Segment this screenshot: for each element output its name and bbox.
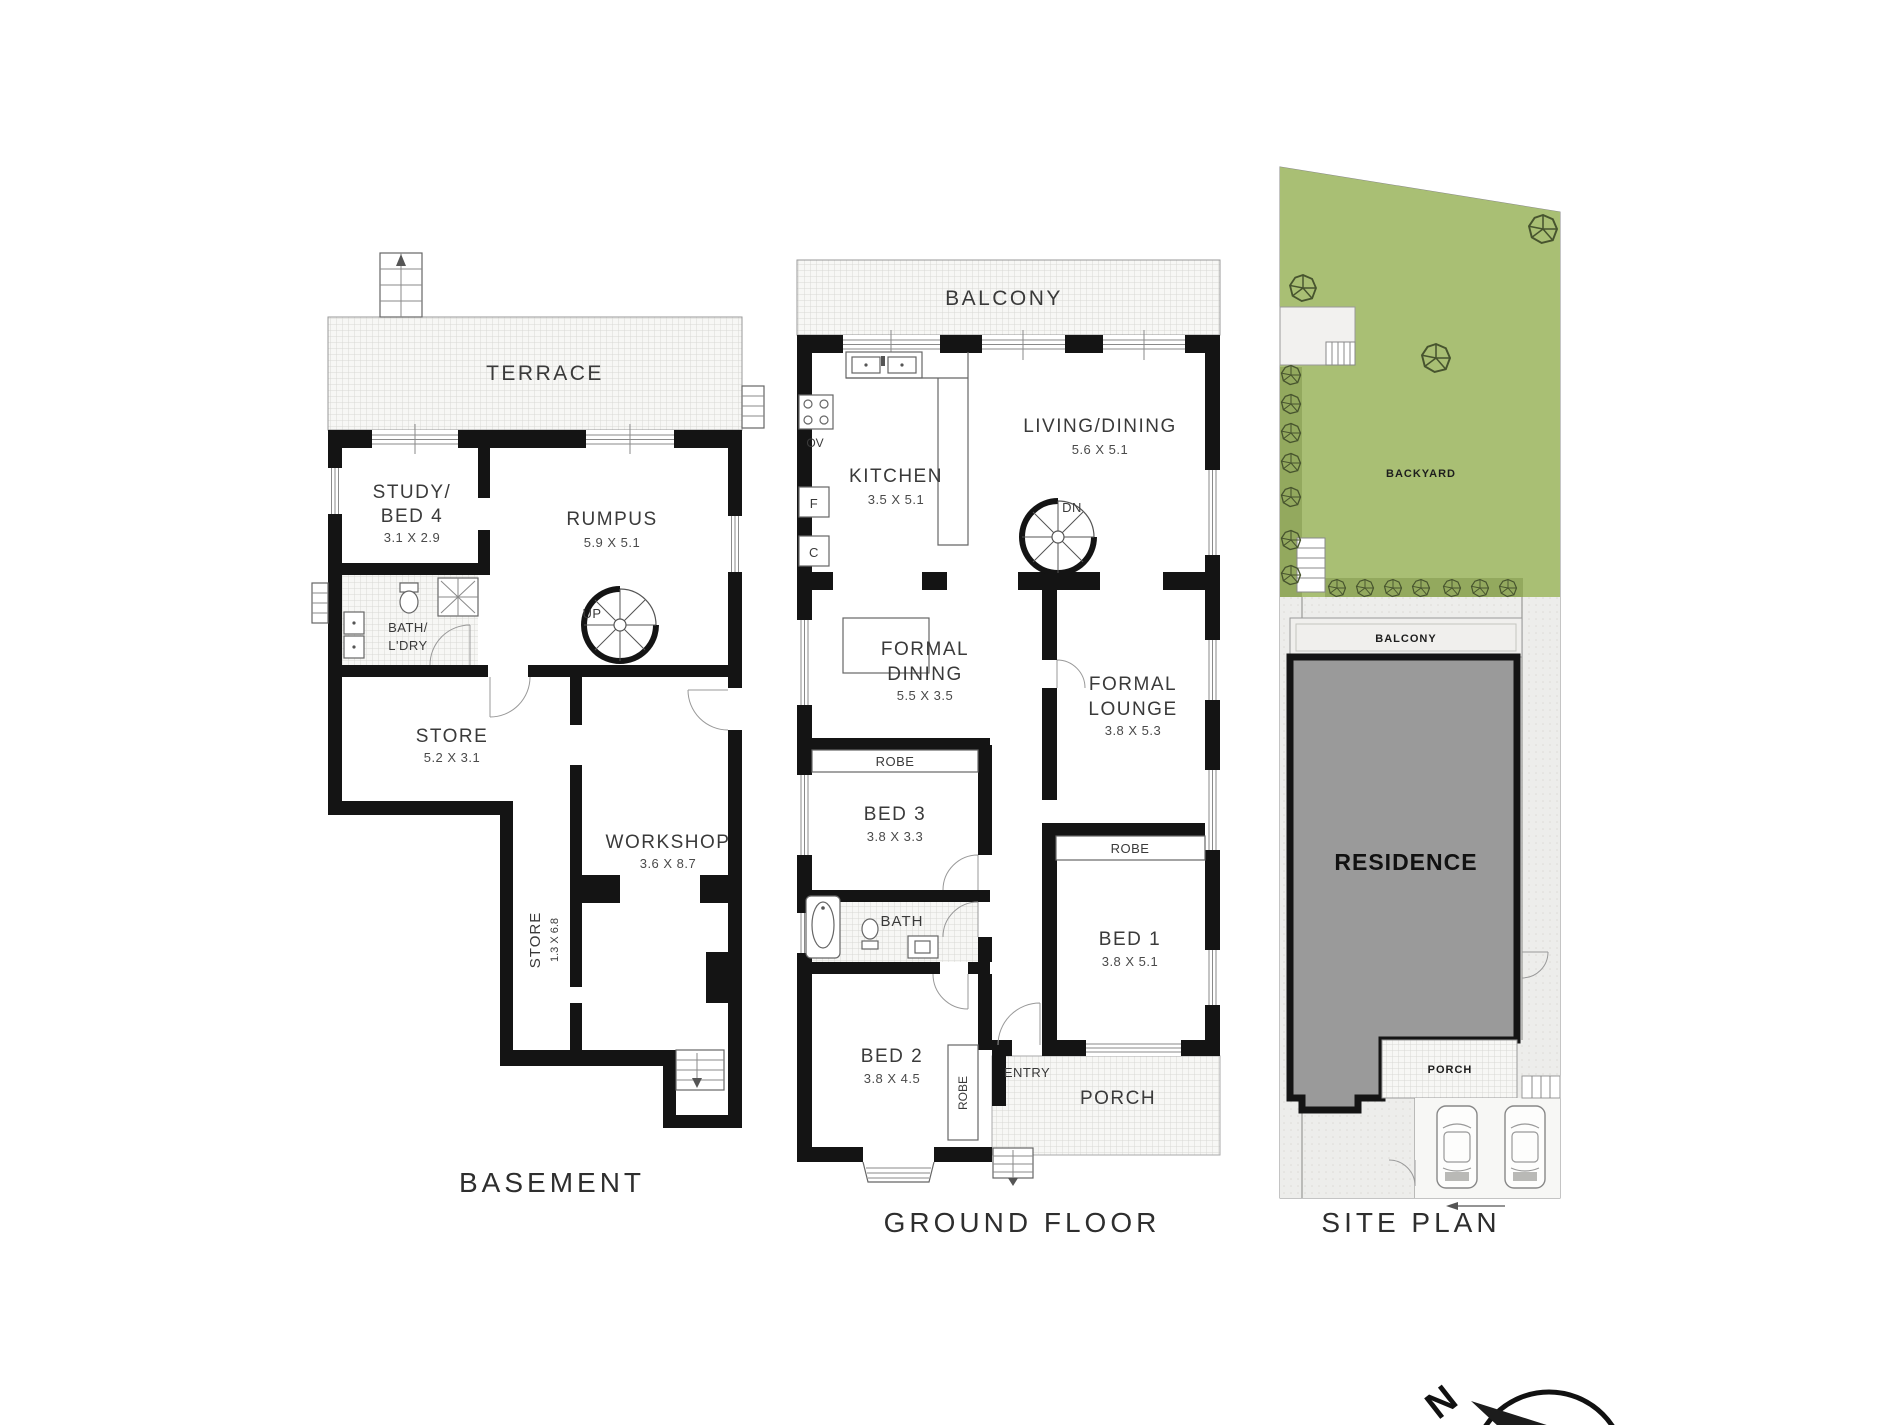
formal-lounge-label-line1: FORMAL (1089, 674, 1177, 695)
bed2-dims: 3.8 X 4.5 (864, 1071, 921, 1086)
ground-floor-title: GROUND FLOOR (884, 1207, 1161, 1238)
workshop-label: WORKSHOP (606, 832, 731, 853)
study-bed4-label-line2: BED 4 (381, 506, 443, 527)
basement-plan: TERRACE STUDY/ BED 4 3.1 X 2.9 RUMPUS 5.… (312, 253, 764, 1198)
site-terrace (1280, 307, 1355, 365)
bath-laundry-label-line2: L'DRY (388, 638, 427, 653)
compass: N (1418, 1378, 1625, 1425)
spiral-stair-down-icon (1022, 501, 1094, 573)
kitchen-sink-icon (846, 352, 922, 378)
rumpus-dims: 5.9 X 5.1 (584, 535, 641, 550)
living-dining-label: LIVING/DINING (1023, 416, 1177, 437)
formal-lounge-label-line2: LOUNGE (1088, 699, 1177, 720)
fridge-label: F (810, 496, 818, 511)
vanity-icon (908, 936, 938, 958)
kitchen-label: KITCHEN (849, 466, 943, 487)
living-dining-dims: 5.6 X 5.1 (1072, 442, 1129, 457)
porch-steps-icon (993, 1148, 1033, 1186)
bed2-robe-label: ROBE (956, 1076, 970, 1110)
site-porch-label: PORCH (1428, 1064, 1473, 1076)
site-plan-title: SITE PLAN (1321, 1207, 1500, 1238)
rumpus-label: RUMPUS (566, 509, 657, 530)
formal-dining-label-line2: DINING (887, 664, 963, 685)
shower-icon (438, 578, 478, 616)
store-narrow-label: STORE (527, 912, 544, 968)
bed3-robe-label: ROBE (876, 754, 915, 769)
backyard-lawn (1280, 167, 1560, 597)
store-dims: 5.2 X 3.1 (424, 750, 481, 765)
bed2-label: BED 2 (861, 1046, 923, 1067)
ground-floor-plan: BALCONY KITCHEN 3.5 X 5.1 OV F C LIVING/… (797, 260, 1220, 1238)
car-icon (1437, 1106, 1477, 1188)
basement-lower-stairs-icon (676, 1050, 724, 1090)
gf-balcony-label: BALCONY (945, 287, 1063, 310)
entry-label: ENTRY (1004, 1065, 1050, 1080)
site-plan: BACKYARD BALCONY RESIDENCE PORCH SITE PL… (1280, 167, 1560, 1238)
toilet-icon (400, 583, 418, 613)
car-icon (1505, 1106, 1545, 1188)
basement-side-steps-icon (312, 583, 328, 623)
study-bed4-dims: 3.1 X 2.9 (384, 530, 441, 545)
bed3-label: BED 3 (864, 804, 926, 825)
gf-bath-label: BATH (881, 913, 924, 930)
oven-label: OV (806, 436, 823, 450)
bathtub-icon (806, 896, 840, 958)
gf-porch-label: PORCH (1080, 1088, 1156, 1109)
cupboard-label: C (809, 545, 819, 560)
terrace-stairs-icon (380, 253, 422, 317)
spiral-stair-up-icon (584, 589, 656, 661)
gf-toilet-icon (862, 919, 878, 949)
formal-dining-label-line1: FORMAL (881, 639, 969, 660)
basement-title: BASEMENT (459, 1167, 645, 1198)
study-bed4-label-line1: STUDY/ (373, 482, 452, 503)
floorplan-page: TERRACE STUDY/ BED 4 3.1 X 2.9 RUMPUS 5.… (0, 0, 1900, 1425)
residence-label: RESIDENCE (1334, 849, 1477, 875)
compass-north-label: N (1418, 1378, 1465, 1425)
bed3-dims: 3.8 X 3.3 (867, 829, 924, 844)
bay-window-icon (863, 1162, 934, 1182)
backyard-stairs-icon (1297, 538, 1325, 592)
store-label: STORE (416, 726, 489, 747)
bed1-robe-label: ROBE (1111, 841, 1150, 856)
store-narrow-dims: 1.3 X 6.8 (549, 918, 561, 962)
formal-lounge-dims: 3.8 X 5.3 (1105, 723, 1162, 738)
site-balcony-label: BALCONY (1375, 633, 1436, 645)
backyard-label: BACKYARD (1386, 468, 1456, 480)
stairs-down-label: DN (1062, 500, 1082, 515)
ground-floor-walls (797, 335, 1220, 1162)
stairs-up-label: UP (582, 606, 601, 621)
kitchen-counter (846, 352, 968, 545)
bed1-dims: 3.8 X 5.1 (1102, 954, 1159, 969)
floorplan-drawing: TERRACE STUDY/ BED 4 3.1 X 2.9 RUMPUS 5.… (0, 0, 1900, 1425)
stove-icon (799, 395, 833, 429)
formal-dining-dims: 5.5 X 3.5 (897, 688, 954, 703)
kitchen-dims: 3.5 X 5.1 (868, 492, 925, 507)
bed1-label: BED 1 (1099, 929, 1161, 950)
workshop-dims: 3.6 X 8.7 (640, 856, 697, 871)
terrace-side-stairs-icon (742, 386, 764, 428)
terrace-label: TERRACE (486, 362, 604, 385)
bath-laundry-label-line1: BATH/ (388, 620, 428, 635)
